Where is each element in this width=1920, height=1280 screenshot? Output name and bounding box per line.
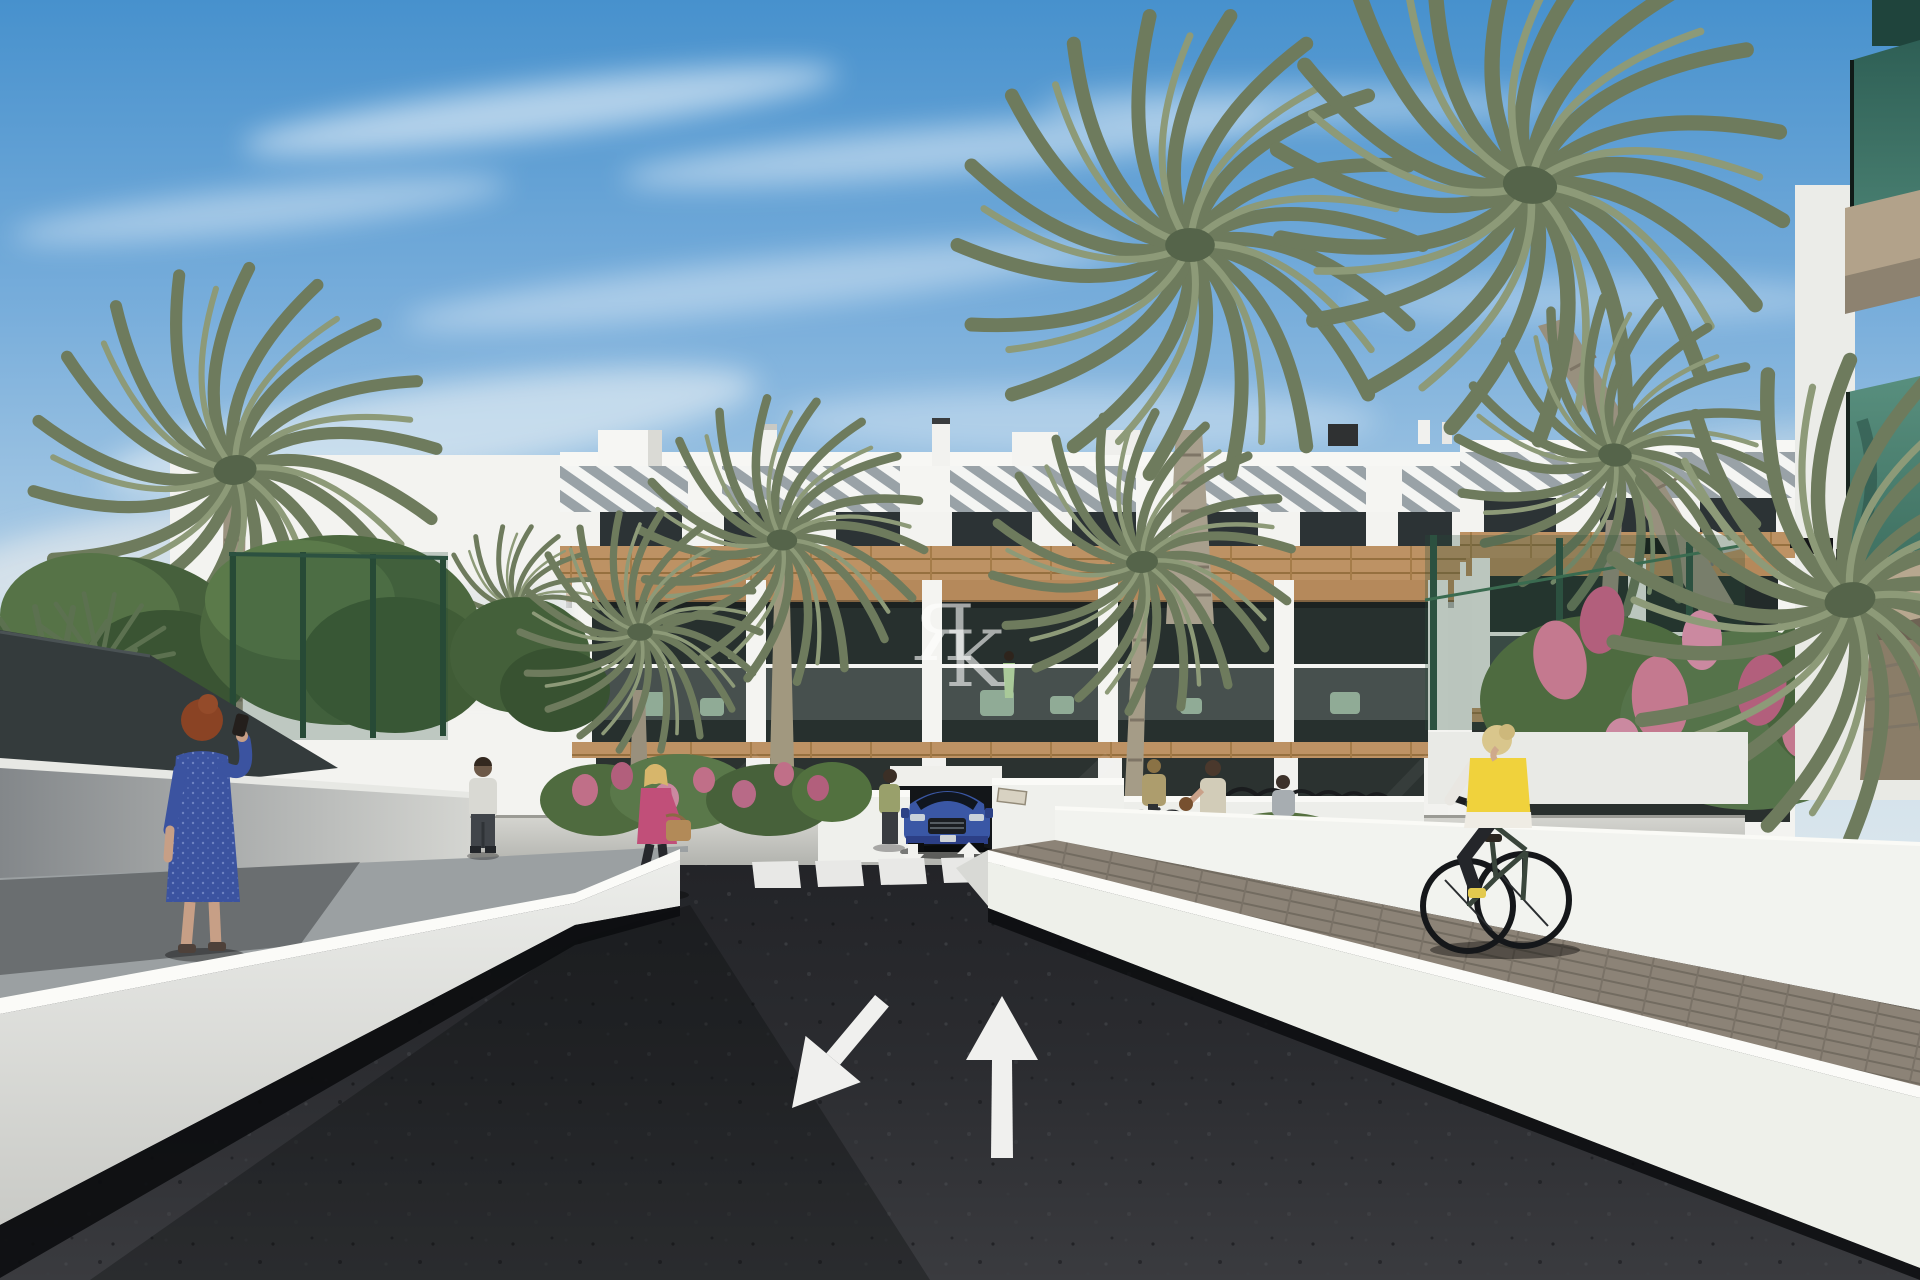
glass-balustrade [1852, 40, 1920, 212]
rack-cyclist [1142, 774, 1166, 806]
green-fence [229, 552, 448, 740]
seated-person [1272, 790, 1295, 816]
render-canvas: Я K [0, 0, 1920, 1280]
entrance-sign [997, 788, 1026, 804]
crosswalk-stripe [878, 858, 927, 885]
side-mirror [901, 808, 909, 818]
watermark-letter: K [945, 615, 1005, 705]
yellow-vest [1466, 758, 1531, 820]
cyclist-shoe [1468, 888, 1486, 898]
architectural-render: Я K [0, 0, 1920, 1280]
grille [928, 818, 966, 834]
license-plate [940, 835, 956, 842]
crosswalk-stripe [815, 860, 864, 887]
handbag [666, 820, 691, 841]
headlight [969, 814, 984, 821]
side-mirror [985, 808, 993, 818]
crosswalk-stripe [752, 861, 801, 888]
headlight [910, 814, 925, 821]
